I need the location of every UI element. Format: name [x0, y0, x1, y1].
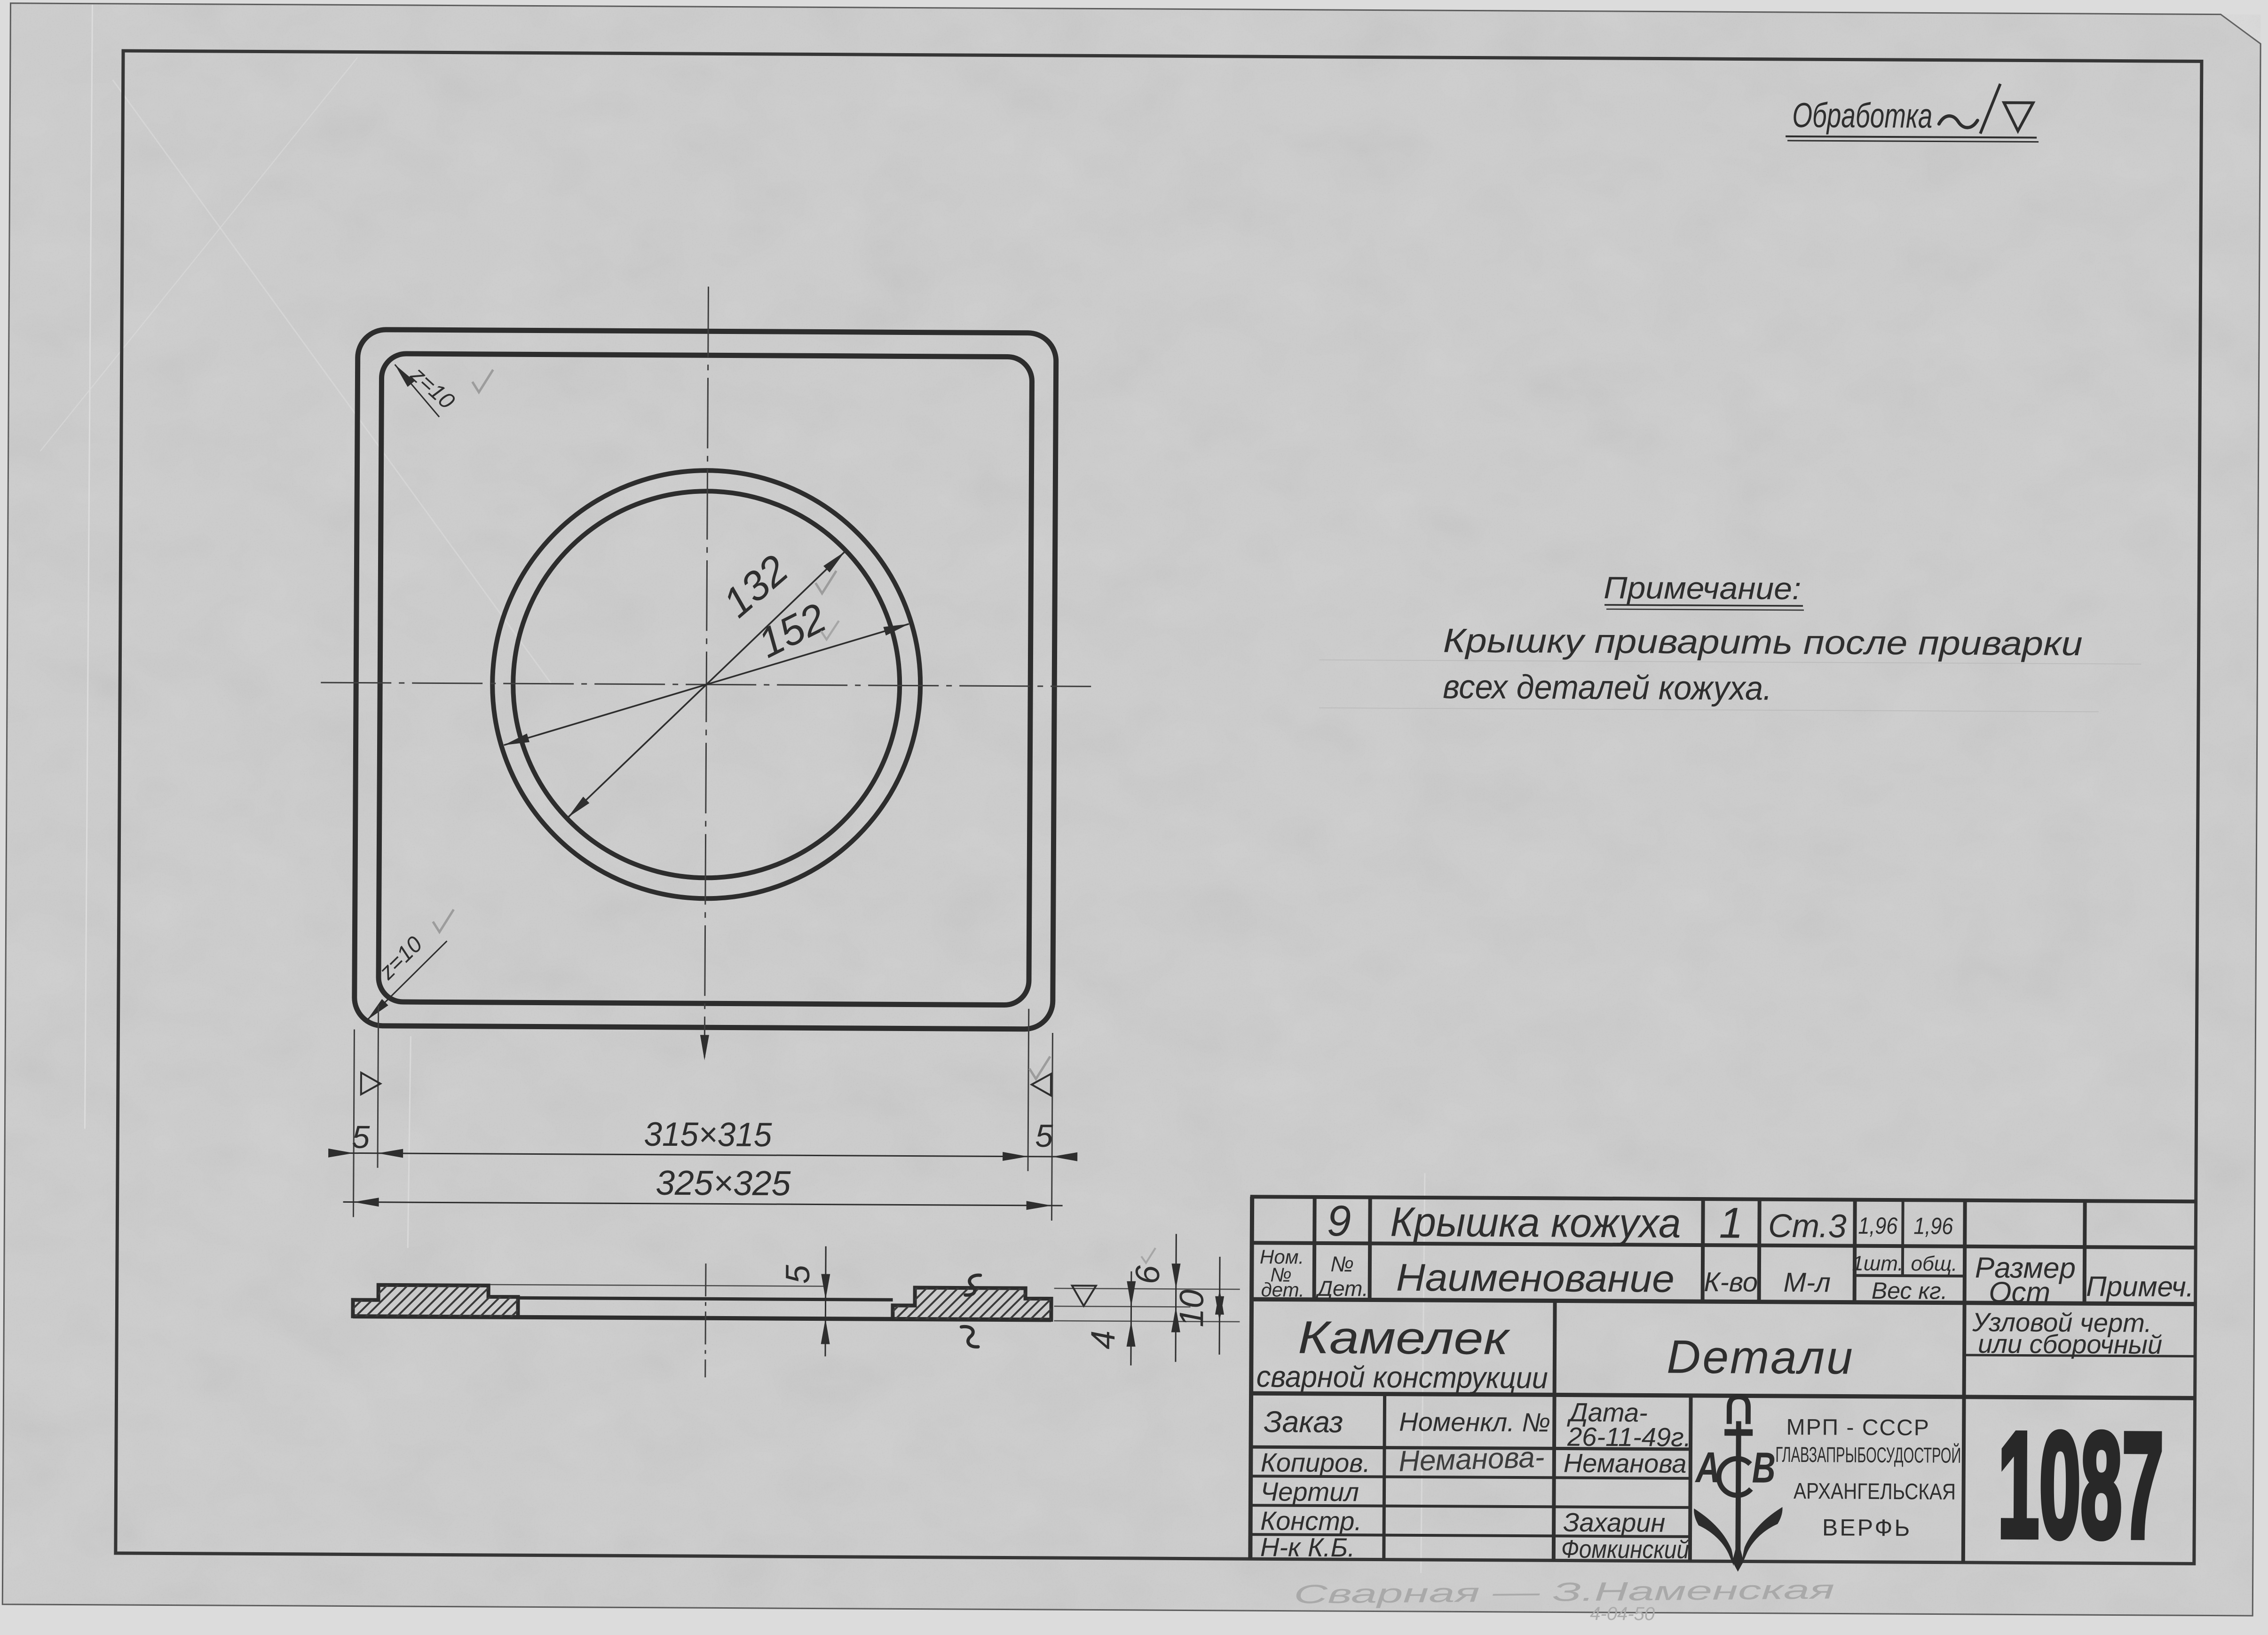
svg-text:Копиров.: Копиров. — [1261, 1447, 1371, 1477]
svg-text:В: В — [1752, 1444, 1776, 1492]
svg-text:1: 1 — [1719, 1199, 1744, 1247]
svg-text:Неманова-: Неманова- — [1398, 1441, 1545, 1478]
svg-text:5: 5 — [352, 1119, 370, 1155]
svg-text:Обработка: Обработка — [1792, 95, 1932, 135]
svg-text:10: 10 — [1173, 1289, 1210, 1327]
svg-text:1,96: 1,96 — [1913, 1213, 1953, 1239]
svg-text:5: 5 — [1035, 1118, 1053, 1154]
svg-text:Dетали: Dетали — [1667, 1331, 1855, 1384]
svg-text:Фомкинский: Фомкинский — [1561, 1535, 1689, 1564]
svg-text:1,96: 1,96 — [1858, 1213, 1897, 1239]
svg-text:М-л: М-л — [1783, 1267, 1831, 1298]
svg-text:Сварная — З.Наменская: Сварная — З.Наменская — [1294, 1574, 1835, 1609]
svg-text:Вес кг.: Вес кг. — [1872, 1278, 1948, 1304]
svg-text:дет.: дет. — [1261, 1278, 1304, 1301]
svg-text:ВЕРФЬ: ВЕРФЬ — [1822, 1514, 1912, 1541]
svg-text:сварной конструкции: сварной конструкции — [1256, 1359, 1548, 1395]
svg-text:Дет.: Дет. — [1315, 1276, 1368, 1301]
svg-text:4: 4 — [1084, 1330, 1122, 1349]
svg-text:МРП - СССР: МРП - СССР — [1786, 1415, 1930, 1441]
svg-text:5: 5 — [779, 1264, 817, 1284]
svg-text:6: 6 — [1129, 1265, 1167, 1284]
svg-text:Неманова: Неманова — [1564, 1448, 1687, 1478]
svg-text:26-11-49г.: 26-11-49г. — [1567, 1422, 1691, 1452]
svg-text:Крышка кожуха: Крышка кожуха — [1390, 1198, 1681, 1246]
svg-text:4-04-50: 4-04-50 — [1590, 1603, 1655, 1625]
svg-text:Наименование: Наименование — [1396, 1256, 1675, 1301]
svg-text:Номенкл. №: Номенкл. № — [1399, 1407, 1550, 1437]
svg-text:1шт.: 1шт. — [1852, 1252, 1904, 1276]
svg-text:К-во: К-во — [1704, 1267, 1758, 1298]
svg-text:всех деталей кожуха.: всех деталей кожуха. — [1443, 668, 1772, 707]
svg-text:АРХАНГЕЛЬСКАЯ: АРХАНГЕЛЬСКАЯ — [1794, 1479, 1956, 1505]
svg-text:Крышку приварить после приварк: Крышку приварить после приварки — [1443, 622, 2082, 663]
svg-text:Примечание:: Примечание: — [1604, 570, 1801, 606]
svg-text:325×325: 325×325 — [656, 1163, 791, 1203]
svg-text:Камелек: Камелек — [1298, 1311, 1511, 1364]
svg-text:Заказ: Заказ — [1264, 1405, 1343, 1439]
svg-text:Ост: Ост — [1989, 1276, 2050, 1309]
svg-text:общ.: общ. — [1911, 1252, 1957, 1276]
svg-text:Н-к К.Б.: Н-к К.Б. — [1260, 1532, 1355, 1562]
svg-text:Захарин: Захарин — [1563, 1508, 1665, 1538]
svg-text:№: № — [1330, 1252, 1354, 1276]
svg-text:1087: 1087 — [1998, 1401, 2164, 1569]
svg-text:или сборочный: или сборочный — [1978, 1329, 2162, 1359]
svg-text:Ст.3: Ст.3 — [1768, 1207, 1847, 1245]
svg-text:Чертил: Чертил — [1260, 1476, 1359, 1507]
svg-text:9: 9 — [1327, 1197, 1351, 1245]
svg-text:Констр.: Констр. — [1260, 1506, 1362, 1536]
svg-text:Примеч.: Примеч. — [2086, 1270, 2194, 1302]
svg-text:А: А — [1695, 1444, 1720, 1492]
svg-text:ГЛАВЗАПРЫБОСУДОСТРОЙ: ГЛАВЗАПРЫБОСУДОСТРОЙ — [1775, 1442, 1961, 1468]
svg-text:315×315: 315×315 — [644, 1116, 772, 1154]
